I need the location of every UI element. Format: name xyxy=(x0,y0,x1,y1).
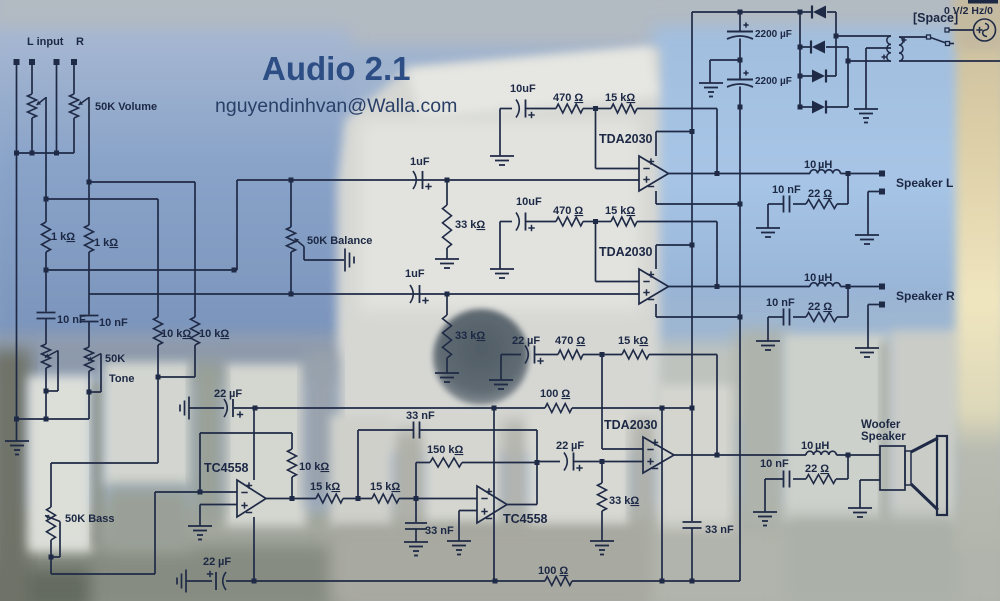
svg-text:15 kΩ: 15 kΩ xyxy=(605,92,635,104)
svg-text:33 kΩ: 33 kΩ xyxy=(455,330,485,342)
svg-text:10 nF: 10 nF xyxy=(760,458,789,470)
svg-text:50K Balance: 50K Balance xyxy=(307,235,372,247)
svg-text:Speaker R: Speaker R xyxy=(896,289,955,303)
svg-text:10uF: 10uF xyxy=(516,196,542,208)
svg-text:TDA2030: TDA2030 xyxy=(599,245,653,259)
svg-text:50K Volume: 50K Volume xyxy=(95,101,157,113)
svg-text:33 kΩ: 33 kΩ xyxy=(609,495,639,507)
svg-text:10 kΩ: 10 kΩ xyxy=(299,461,329,473)
svg-text:Tone: Tone xyxy=(109,373,134,385)
svg-text:TDA2030: TDA2030 xyxy=(604,418,658,432)
svg-text:100 Ω: 100 Ω xyxy=(540,388,570,400)
svg-text:TC4558: TC4558 xyxy=(204,461,249,475)
svg-text:470 Ω: 470 Ω xyxy=(553,205,583,217)
svg-text:10 nF: 10 nF xyxy=(772,184,801,196)
svg-text:10 kΩ: 10 kΩ xyxy=(199,328,229,340)
svg-text:22: 22 xyxy=(214,388,226,400)
svg-text:Speaker: Speaker xyxy=(861,431,906,443)
svg-text:µH: µH xyxy=(815,440,829,452)
svg-text:33 nF: 33 nF xyxy=(425,525,454,537)
svg-text:22 Ω: 22 Ω xyxy=(805,463,829,475)
svg-text:R: R xyxy=(76,36,84,48)
svg-text:µF: µF xyxy=(571,440,584,452)
svg-text:L input: L input xyxy=(27,36,64,48)
svg-text:µF: µF xyxy=(780,76,792,87)
svg-text:10: 10 xyxy=(804,159,816,171)
svg-text:1uF: 1uF xyxy=(405,268,425,280)
svg-text:22: 22 xyxy=(556,440,568,452)
svg-text:µH: µH xyxy=(818,159,832,171)
svg-text:50K: 50K xyxy=(105,353,125,365)
svg-text:µF: µF xyxy=(780,29,792,40)
svg-text:15 kΩ: 15 kΩ xyxy=(310,481,340,493)
svg-text:33 kΩ: 33 kΩ xyxy=(455,219,485,231)
svg-text:µF: µF xyxy=(527,335,540,347)
svg-text:µF: µF xyxy=(218,556,231,568)
svg-text:150 kΩ: 150 kΩ xyxy=(427,444,464,456)
svg-text:µF: µF xyxy=(229,388,242,400)
svg-text:0 V/2 Hz/0: 0 V/2 Hz/0 xyxy=(944,5,993,17)
svg-text:22 Ω: 22 Ω xyxy=(808,301,832,313)
svg-text:33 nF: 33 nF xyxy=(406,410,435,422)
svg-text:Woofer: Woofer xyxy=(861,419,901,431)
svg-text:1uF: 1uF xyxy=(410,156,430,168)
svg-text:22 Ω: 22 Ω xyxy=(808,188,832,200)
svg-text:10: 10 xyxy=(801,440,813,452)
svg-text:2200: 2200 xyxy=(755,29,778,40)
svg-text:nguyendinhvan@Walla.com: nguyendinhvan@Walla.com xyxy=(215,95,457,117)
svg-text:10uF: 10uF xyxy=(510,83,536,95)
svg-text:Audio 2.1: Audio 2.1 xyxy=(262,50,411,87)
svg-text:15 kΩ: 15 kΩ xyxy=(618,335,648,347)
svg-text:15 kΩ: 15 kΩ xyxy=(370,481,400,493)
svg-text:1 kΩ: 1 kΩ xyxy=(94,237,118,249)
svg-text:TC4558: TC4558 xyxy=(503,512,548,526)
svg-text:33 nF: 33 nF xyxy=(705,524,734,536)
svg-text:10 kΩ: 10 kΩ xyxy=(161,328,191,340)
svg-text:470 Ω: 470 Ω xyxy=(555,335,585,347)
svg-text:22: 22 xyxy=(203,556,215,568)
svg-text:15 kΩ: 15 kΩ xyxy=(605,205,635,217)
svg-text:22: 22 xyxy=(512,335,524,347)
svg-text:50K Bass: 50K Bass xyxy=(65,513,115,525)
svg-text:10 nF: 10 nF xyxy=(766,297,795,309)
svg-text:100 Ω: 100 Ω xyxy=(538,565,568,577)
svg-text:µH: µH xyxy=(818,272,832,284)
svg-text:10: 10 xyxy=(804,272,816,284)
svg-text:2200: 2200 xyxy=(755,76,778,87)
svg-text:10 nF: 10 nF xyxy=(57,314,86,326)
svg-text:1 kΩ: 1 kΩ xyxy=(51,231,75,243)
svg-text:TDA2030: TDA2030 xyxy=(599,132,653,146)
svg-text:10 nF: 10 nF xyxy=(99,317,128,329)
svg-text:470 Ω: 470 Ω xyxy=(553,92,583,104)
svg-text:Speaker L: Speaker L xyxy=(896,176,953,190)
